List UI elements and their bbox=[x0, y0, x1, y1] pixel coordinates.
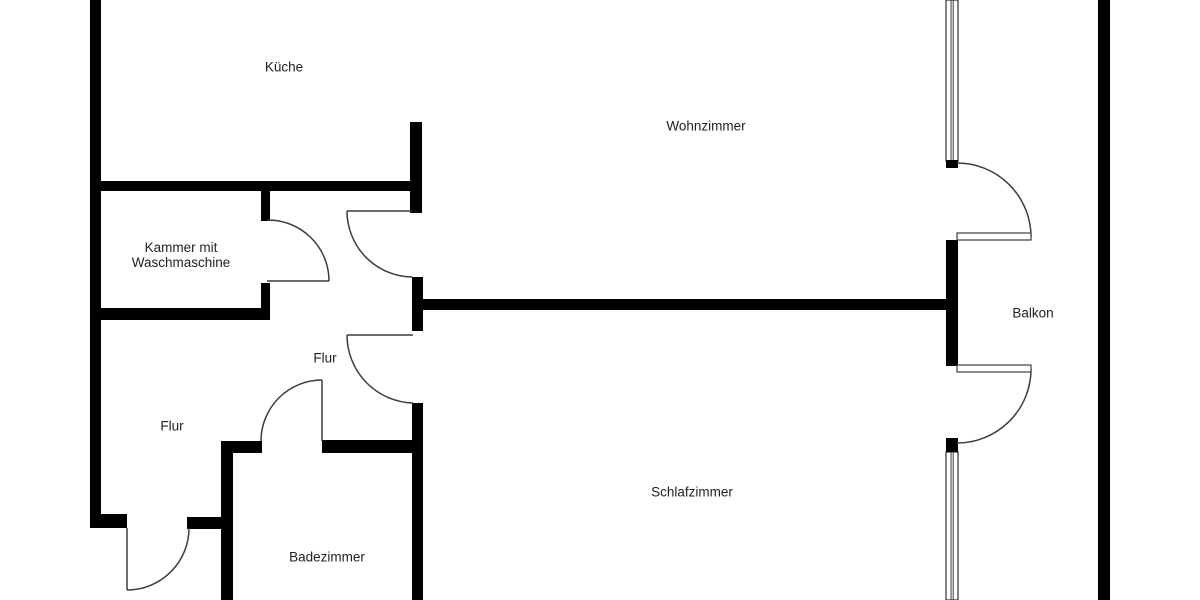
wall-wohn-schlaf-trennwand bbox=[418, 299, 948, 310]
floor-plan: KücheWohnzimmerKammer mitWaschmaschineFl… bbox=[0, 0, 1200, 600]
room-label-wohnzimmer: Wohnzimmer bbox=[666, 119, 746, 134]
wall-kammer-sued bbox=[90, 308, 270, 320]
wall-balkon-fenster-block-2 bbox=[946, 438, 958, 452]
wall-kueche-sued bbox=[90, 181, 422, 191]
wall-kammer-ost-oben bbox=[261, 188, 270, 221]
room-label-kammer: Kammer mit bbox=[145, 240, 218, 255]
room-label-kammer: Waschmaschine bbox=[132, 255, 231, 270]
room-label-kueche: Küche bbox=[265, 60, 303, 75]
room-label-flur-oben: Flur bbox=[313, 351, 337, 366]
wall-kueche-wohnzimmer bbox=[410, 122, 422, 213]
wall-flur-sued-links bbox=[90, 514, 127, 528]
wall-outer-right bbox=[1098, 0, 1110, 600]
wall-schlaf-west bbox=[412, 403, 423, 600]
door-leaf-balkon-tuer-oben bbox=[957, 233, 1031, 240]
wall-flur-sued-rechts bbox=[187, 517, 232, 529]
wall-bad-nord-rechts bbox=[322, 440, 423, 453]
door-leaf-balkon-tuer-unten bbox=[957, 365, 1031, 372]
room-label-balkon: Balkon bbox=[1012, 306, 1053, 321]
room-label-badezimmer: Badezimmer bbox=[289, 550, 365, 565]
window-icon bbox=[946, 0, 958, 161]
window-icon bbox=[946, 452, 958, 600]
wall-balkon-mittelwand bbox=[946, 240, 958, 366]
floor-plan-svg: KücheWohnzimmerKammer mitWaschmaschineFl… bbox=[0, 0, 1200, 600]
wall-balkon-fenster-block-1 bbox=[946, 160, 958, 168]
wall-outer-left bbox=[90, 0, 101, 528]
room-label-flur-unten: Flur bbox=[160, 419, 184, 434]
room-label-schlafzimmer: Schlafzimmer bbox=[651, 485, 733, 500]
